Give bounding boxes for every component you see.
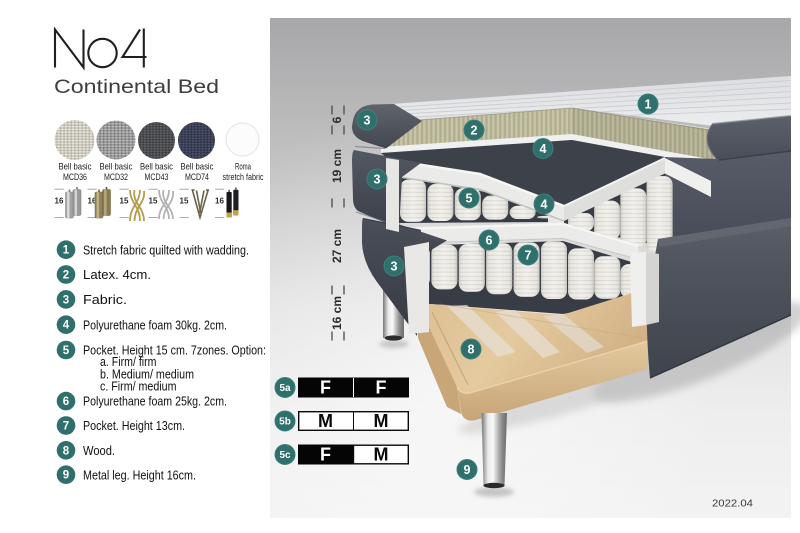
svg-text:MCD32: MCD32: [104, 172, 128, 182]
svg-text:15: 15: [149, 197, 158, 206]
svg-text:Wood.: Wood.: [83, 443, 115, 458]
svg-text:Stretch fabric quilted with wa: Stretch fabric quilted with wadding.: [83, 242, 249, 257]
svg-text:Continental Bed: Continental Bed: [54, 76, 219, 98]
svg-text:stretch fabric: stretch fabric: [223, 172, 264, 182]
svg-text:3: 3: [364, 114, 371, 128]
svg-text:7: 7: [63, 421, 69, 433]
svg-text:2022.04: 2022.04: [712, 499, 753, 510]
svg-text:Bell basic: Bell basic: [100, 162, 133, 172]
svg-text:15: 15: [180, 197, 189, 206]
svg-text:8: 8: [468, 343, 475, 357]
svg-text:Bell basic: Bell basic: [59, 162, 92, 172]
svg-text:5: 5: [63, 345, 70, 357]
svg-text:5a: 5a: [279, 383, 291, 394]
svg-text:F: F: [320, 445, 331, 465]
svg-text:9: 9: [63, 470, 69, 482]
svg-text:Latex. 4cm.: Latex. 4cm.: [83, 267, 151, 282]
svg-text:16: 16: [55, 197, 64, 206]
svg-text:19 cm: 19 cm: [330, 149, 344, 183]
svg-text:MCD36: MCD36: [63, 172, 87, 182]
svg-text:6: 6: [330, 116, 344, 123]
svg-text:4: 4: [541, 198, 548, 212]
svg-text:M: M: [374, 445, 389, 465]
svg-text:9: 9: [464, 463, 471, 477]
svg-text:4: 4: [540, 142, 547, 156]
svg-text:1: 1: [63, 245, 70, 257]
svg-text:16 cm: 16 cm: [330, 296, 344, 330]
svg-text:Roma: Roma: [235, 162, 252, 172]
svg-text:Polyurethane foam 30kg. 2cm.: Polyurethane foam 30kg. 2cm.: [83, 317, 227, 332]
svg-text:5b: 5b: [279, 417, 291, 428]
svg-text:F: F: [320, 378, 331, 398]
svg-text:15: 15: [120, 197, 129, 206]
svg-text:Bell basic: Bell basic: [181, 162, 214, 172]
svg-text:3: 3: [63, 294, 69, 306]
svg-text:MCD74: MCD74: [185, 172, 209, 182]
svg-text:27 cm: 27 cm: [330, 229, 344, 263]
svg-text:3: 3: [374, 173, 381, 187]
svg-text:Fabric.: Fabric.: [83, 292, 127, 307]
svg-text:3: 3: [391, 260, 398, 274]
svg-text:1: 1: [645, 98, 652, 112]
svg-text:MCD43: MCD43: [145, 172, 169, 182]
svg-text:4: 4: [63, 320, 70, 332]
svg-text:F: F: [376, 378, 387, 398]
svg-text:6: 6: [486, 234, 493, 248]
svg-text:5: 5: [466, 192, 473, 206]
svg-text:Bell basic: Bell basic: [140, 162, 173, 172]
svg-text:16: 16: [215, 197, 224, 206]
svg-text:c. Firm/ medium: c. Firm/ medium: [100, 379, 177, 394]
svg-text:6: 6: [63, 396, 69, 408]
svg-text:Metal leg. Height 16cm.: Metal leg. Height 16cm.: [83, 467, 196, 482]
svg-text:M: M: [318, 411, 333, 431]
svg-text:M: M: [374, 411, 389, 431]
svg-text:5c: 5c: [279, 450, 291, 461]
svg-text:7: 7: [525, 249, 532, 263]
svg-text:2: 2: [63, 270, 69, 282]
svg-text:Polyurethane foam 25kg. 2cm.: Polyurethane foam 25kg. 2cm.: [83, 394, 227, 409]
svg-text:2: 2: [471, 124, 478, 138]
svg-text:8: 8: [63, 445, 70, 457]
svg-text:Pocket. Height 13cm.: Pocket. Height 13cm.: [83, 418, 185, 433]
